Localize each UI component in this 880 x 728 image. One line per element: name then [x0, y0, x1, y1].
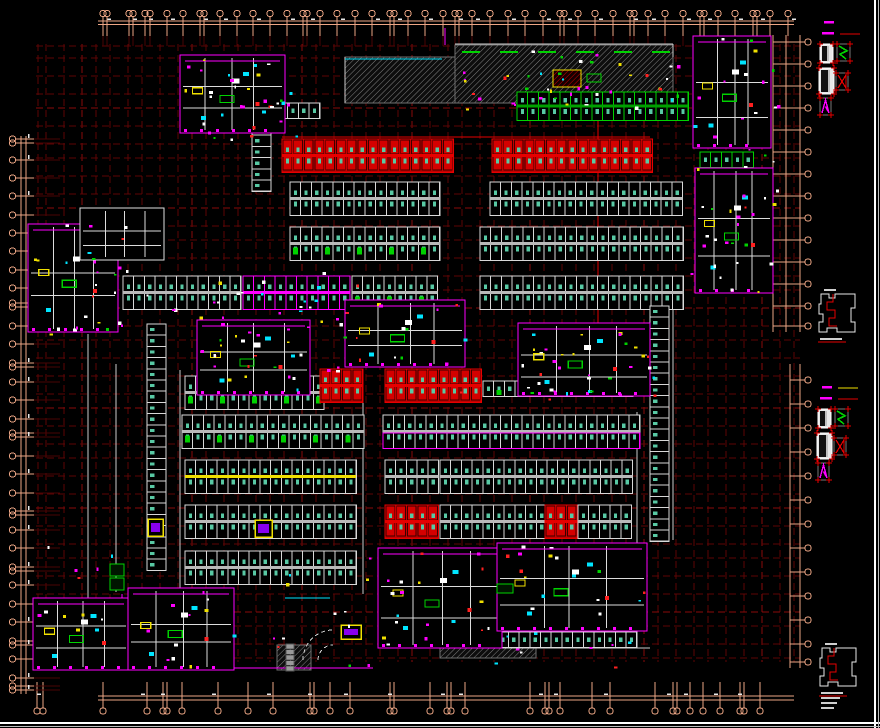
annotation-speck: [719, 276, 721, 279]
annotation-speck: [49, 334, 52, 336]
grid-bubble: [130, 10, 136, 16]
grid-bubble: [607, 708, 613, 714]
annotation-speck: [539, 97, 542, 99]
annotation-speck: [252, 126, 255, 129]
annotation-speck: [659, 88, 662, 90]
annotation-speck: [261, 293, 263, 295]
annotation-speck: [436, 308, 438, 311]
grid-bubble: [34, 708, 40, 714]
grid-bubble: [522, 10, 528, 16]
annotation-speck: [531, 50, 535, 53]
annotation-speck: [547, 88, 549, 90]
grid-bubble: [805, 449, 811, 455]
grid-bubble: [785, 10, 791, 16]
annotation-speck: [527, 387, 530, 389]
parking-row-red: [545, 505, 577, 539]
grid-bubble: [687, 708, 693, 714]
annotation-speck: [714, 238, 717, 240]
grid-bubble: [9, 230, 15, 236]
annotation-speck: [558, 73, 561, 75]
annotation-speck: [344, 611, 347, 613]
grid-bubble: [767, 10, 773, 16]
annotation-speck: [48, 546, 50, 549]
annotation-speck: [314, 300, 318, 302]
grid-bubble: [631, 10, 637, 16]
annotation-speck: [395, 621, 398, 623]
annotation-speck: [287, 328, 290, 330]
grid-bubble: [652, 708, 658, 714]
grid-bubble: [215, 708, 221, 714]
annotation-speck: [292, 377, 295, 380]
grid-bubble: [270, 708, 276, 714]
annotation-speck: [121, 238, 124, 240]
annotation-speck: [488, 627, 490, 630]
grid-bubble: [805, 473, 811, 479]
annotation-speck: [634, 346, 637, 348]
parking-row-white: [385, 460, 439, 494]
grid-bubble: [327, 708, 333, 714]
grid-bubble: [805, 237, 811, 243]
annotation-speck: [614, 667, 618, 669]
annotation-speck: [106, 328, 109, 331]
annotation-speck: [472, 93, 475, 95]
annotation-speck: [277, 103, 279, 105]
grid-bubble: [9, 175, 15, 181]
grid-bubble: [701, 10, 707, 16]
annotation-speck: [287, 342, 290, 344]
annotation-speck: [629, 75, 632, 77]
parking-row-white: [185, 460, 356, 494]
grid-bubble: [805, 545, 811, 551]
floor-plan-drawing[interactable]: [0, 0, 880, 728]
annotation-speck: [585, 86, 588, 89]
grid-bubble: [369, 10, 375, 16]
grid-bubble: [754, 10, 760, 16]
annotation-speck: [599, 613, 602, 616]
annotation-speck: [566, 104, 569, 106]
annotation-speck: [254, 355, 257, 357]
annotation-speck: [78, 577, 81, 579]
grid-bubble: [487, 10, 493, 16]
grid-bubble: [9, 675, 15, 681]
annotation-speck: [464, 80, 466, 83]
annotation-speck: [748, 149, 750, 151]
grid-bubble: [245, 708, 251, 714]
grid-bubble: [352, 10, 358, 16]
annotation-speck: [612, 644, 614, 646]
annotation-speck: [670, 65, 673, 67]
building-core-b11: [128, 588, 237, 670]
annotation-speck: [647, 356, 649, 358]
grid-bubble: [592, 10, 598, 16]
grid-bubble: [9, 545, 15, 551]
grid-bubble: [805, 659, 811, 665]
annotation-speck: [307, 327, 310, 329]
parking-column: [252, 124, 271, 191]
annotation-speck: [288, 375, 291, 378]
annotation-speck: [273, 637, 275, 639]
grid-bubble: [805, 303, 811, 309]
annotation-speck: [512, 103, 516, 105]
grid-bubble: [9, 568, 15, 574]
annotation-speck: [421, 552, 424, 555]
grid-bubble: [104, 10, 110, 16]
annotation-speck: [203, 59, 205, 61]
grid-bubble: [9, 157, 15, 163]
annotation-speck: [82, 614, 85, 617]
annotation-speck: [399, 580, 402, 583]
annotation-speck: [619, 394, 622, 397]
annotation-speck: [646, 74, 649, 77]
annotation-speck: [66, 225, 69, 227]
parking-row-magenta: [243, 276, 350, 310]
grid-bubble: [805, 83, 811, 89]
grid-bubble: [164, 708, 170, 714]
grid-bubble: [9, 212, 15, 218]
annotation-speck: [550, 90, 552, 93]
annotation-speck: [531, 392, 535, 394]
annotation-speck: [560, 56, 562, 58]
annotation-speck: [88, 252, 92, 254]
annotation-speck: [764, 197, 766, 199]
annotation-speck: [744, 166, 747, 168]
grid-bubble: [805, 323, 811, 329]
annotation-speck: [426, 623, 429, 626]
grid-bubble: [347, 708, 353, 714]
annotation-speck: [289, 574, 291, 577]
annotation-speck: [244, 375, 247, 378]
annotation-speck: [628, 642, 631, 644]
annotation-speck: [711, 208, 713, 210]
annotation-speck: [463, 72, 465, 74]
annotation-speck: [553, 390, 556, 392]
annotation-speck: [336, 318, 339, 321]
annotation-speck: [635, 107, 639, 110]
grid-bubble: [527, 708, 533, 714]
annotation-speck: [218, 282, 222, 285]
parking-row-white: [440, 505, 547, 539]
building-core-b8: [345, 300, 468, 367]
annotation-speck: [124, 226, 128, 229]
annotation-speck: [588, 374, 590, 376]
annotation-speck: [744, 206, 746, 208]
grid-bubble: [805, 497, 811, 503]
caption-line: [821, 707, 834, 709]
grid-bubble: [9, 656, 15, 662]
annotation-speck: [282, 102, 285, 105]
annotation-speck: [608, 377, 612, 379]
annotation-speck: [333, 613, 336, 616]
annotation-speck: [366, 579, 369, 581]
annotation-speck: [199, 317, 203, 320]
annotation-speck: [201, 350, 204, 353]
annotation-speck: [220, 339, 222, 342]
hatched-area: [345, 57, 457, 103]
annotation-speck: [356, 337, 358, 339]
grid-bubble: [805, 641, 811, 647]
key-plan-highlight: [828, 648, 838, 680]
annotation-speck: [89, 225, 92, 228]
annotation-speck: [619, 63, 622, 66]
annotation-speck: [723, 81, 725, 83]
annotation-speck: [235, 335, 237, 338]
annotation-speck: [254, 64, 257, 67]
annotation-speck: [566, 392, 568, 395]
annotation-speck: [506, 554, 510, 557]
annotation-speck: [267, 63, 270, 65]
grid-bubble: [557, 708, 563, 714]
annotation-speck: [418, 582, 420, 585]
parking-row-white: [123, 276, 241, 310]
annotation-speck: [558, 367, 561, 370]
grid-bubble: [9, 267, 15, 273]
grid-bubble: [304, 10, 310, 16]
grid-bubble: [9, 601, 15, 607]
grid-bubble: [805, 259, 811, 265]
annotation-speck: [270, 106, 274, 108]
annotation-speck: [231, 138, 233, 141]
annotation-speck: [701, 206, 703, 208]
building-core-b12: [378, 548, 502, 648]
annotation-speck: [279, 312, 281, 314]
annotation-speck: [754, 112, 757, 114]
annotation-speck: [774, 106, 777, 108]
annotation-speck: [445, 362, 449, 365]
annotation-speck: [217, 301, 220, 303]
annotation-speck: [654, 395, 657, 397]
annotation-speck: [533, 348, 535, 351]
annotation-speck: [213, 137, 215, 139]
annotation-speck: [348, 625, 350, 628]
annotation-speck: [339, 323, 342, 326]
grid-bubble: [805, 521, 811, 527]
annotation-speck: [96, 271, 98, 273]
building-core-b3: [693, 36, 771, 148]
annotation-speck: [729, 210, 731, 213]
annotation-speck: [731, 243, 734, 245]
legend-swatch-magenta: [824, 21, 834, 24]
annotation-speck: [202, 591, 204, 594]
grid-bubble: [9, 140, 15, 146]
annotation-speck: [184, 89, 187, 92]
annotation-speck: [666, 78, 668, 80]
grid-bubble: [100, 708, 106, 714]
annotation-speck: [322, 272, 326, 275]
annotation-speck: [262, 281, 265, 284]
grid-bubble: [717, 708, 723, 714]
annotation-speck: [118, 322, 121, 325]
grid-bubble: [757, 708, 763, 714]
grid-bubble: [805, 593, 811, 599]
annotation-speck: [741, 118, 744, 120]
parking-row-white: [490, 182, 683, 216]
annotation-speck: [221, 114, 224, 117]
annotation-speck: [304, 301, 306, 303]
annotation-speck: [200, 70, 203, 72]
annotation-speck: [387, 644, 390, 646]
grid-bubble: [201, 10, 207, 16]
annotation-speck: [625, 343, 628, 346]
building-core-b1: [180, 55, 285, 133]
annotation-speck: [595, 93, 598, 96]
grid-bubble: [284, 10, 290, 16]
grid-bubble: [317, 10, 323, 16]
annotation-speck: [208, 132, 211, 135]
caption-line: [821, 702, 837, 704]
annotation-speck: [590, 391, 594, 393]
grid-bubble: [40, 708, 46, 714]
grid-bubble: [575, 10, 581, 16]
grid-bubble: [9, 193, 15, 199]
annotation-speck: [776, 190, 779, 193]
annotation-speck: [544, 348, 547, 350]
annotation-speck: [562, 78, 564, 80]
annotation-speck: [189, 665, 192, 668]
annotation-speck: [579, 60, 582, 63]
annotation-speck: [554, 97, 557, 99]
cad-viewport[interactable]: [0, 0, 880, 728]
grid-bubble: [645, 10, 651, 16]
annotation-speck: [57, 328, 60, 331]
grid-bubble: [732, 10, 738, 16]
grid-bubble: [462, 708, 468, 714]
grid-bubble: [805, 127, 811, 133]
annotation-speck: [406, 328, 409, 331]
annotation-speck: [359, 359, 361, 362]
annotation-speck: [555, 557, 559, 560]
annotation-speck: [773, 161, 775, 163]
annotation-speck: [762, 81, 764, 84]
grid-bubble: [662, 10, 668, 16]
grid-bubble: [805, 149, 811, 155]
annotation-speck: [757, 291, 759, 293]
grid-bubble: [164, 10, 170, 16]
annotation-speck: [187, 66, 191, 69]
parking-row-red: [282, 139, 453, 173]
annotation-speck: [540, 72, 542, 75]
annotation-speck: [642, 355, 645, 358]
annotation-speck: [368, 664, 370, 667]
annotation-speck: [286, 583, 290, 586]
annotation-speck: [573, 353, 575, 356]
annotation-speck: [725, 241, 728, 243]
annotation-speck: [336, 370, 340, 372]
grid-bubble: [234, 10, 240, 16]
annotation-speck: [745, 243, 748, 246]
annotation-speck: [480, 600, 484, 603]
grid-bubble: [9, 453, 15, 459]
annotation-speck: [95, 284, 97, 286]
grid-bubble: [391, 10, 397, 16]
annotation-speck: [455, 304, 458, 307]
legend-swatch-magenta: [822, 386, 832, 389]
annotation-speck: [737, 262, 739, 264]
grid-bubble: [805, 569, 811, 575]
grid-bubble: [540, 10, 546, 16]
annotation-speck: [345, 312, 349, 314]
annotation-speck: [777, 105, 781, 108]
annotation-speck: [520, 652, 523, 654]
grid-bubble: [9, 582, 15, 588]
annotation-speck: [171, 657, 174, 660]
key-plan-highlight: [827, 294, 837, 326]
annotation-speck: [394, 356, 396, 358]
annotation-speck: [220, 344, 222, 346]
annotation-speck: [541, 595, 545, 598]
caption-line: [821, 692, 843, 694]
building-core-b7: [197, 320, 310, 395]
grid-bubble: [334, 10, 340, 16]
annotation-speck: [92, 296, 94, 298]
annotation-speck: [147, 294, 149, 296]
grid-bubble: [700, 708, 706, 714]
grid-bubble: [805, 617, 811, 623]
annotation-speck: [750, 40, 753, 43]
annotation-speck: [101, 618, 103, 620]
annotation-speck: [242, 105, 245, 108]
annotation-speck: [66, 262, 68, 265]
annotation-speck: [648, 367, 652, 370]
grid-bubble: [9, 285, 15, 291]
annotation-speck: [76, 327, 78, 330]
annotation-speck: [570, 93, 572, 96]
annotation-speck: [273, 366, 276, 368]
grid-bubble: [9, 527, 15, 533]
annotation-speck: [300, 353, 303, 356]
annotation-speck: [524, 576, 527, 578]
grid-bubble: [680, 10, 686, 16]
grid-bubble: [715, 10, 721, 16]
parking-column: [650, 306, 669, 541]
parking-row-green: [700, 152, 754, 168]
parking-row-red: [385, 505, 439, 539]
annotation-speck: [93, 261, 96, 264]
grid-bubble: [9, 364, 15, 370]
annotation-speck: [349, 664, 351, 667]
annotation-speck: [743, 195, 746, 198]
annotation-speck: [752, 213, 755, 216]
annotation-speck: [296, 388, 298, 391]
parking-row-white: [440, 460, 633, 494]
annotation-speck: [209, 96, 212, 98]
annotation-speck: [481, 567, 483, 570]
annotation-speck: [172, 309, 175, 311]
annotation-speck: [481, 629, 483, 631]
annotation-speck: [234, 85, 236, 88]
annotation-speck: [590, 61, 593, 64]
grid-bubble: [180, 10, 186, 16]
annotation-speck: [241, 292, 244, 294]
annotation-speck: [697, 168, 699, 171]
grid-bubble: [805, 377, 811, 383]
parking-row-white: [290, 182, 440, 216]
grid-bubble: [267, 10, 273, 16]
annotation-speck: [97, 568, 99, 571]
parking-row-white: [480, 227, 683, 261]
annotation-speck: [188, 614, 190, 616]
grid-bubble: [391, 708, 397, 714]
annotation-speck: [477, 553, 480, 556]
annotation-speck: [282, 638, 285, 640]
grid-bubble: [805, 193, 811, 199]
annotation-speck: [577, 87, 580, 90]
grid-bubble: [9, 619, 15, 625]
annotation-speck: [247, 365, 249, 368]
annotation-speck: [84, 315, 87, 318]
grid-bubble: [448, 708, 454, 714]
annotation-speck: [222, 317, 224, 320]
annotation-speck: [629, 366, 632, 368]
